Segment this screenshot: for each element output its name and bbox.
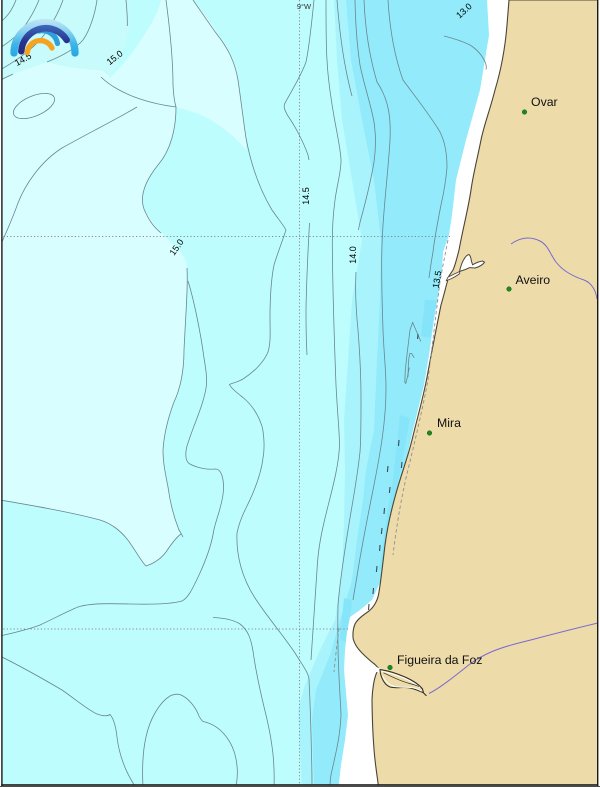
- svg-text:14.5: 14.5: [301, 187, 311, 205]
- svg-text:Aveiro: Aveiro: [516, 273, 551, 287]
- svg-text:9°W: 9°W: [297, 2, 312, 11]
- svg-text:14.0: 14.0: [348, 246, 358, 264]
- svg-text:Figueira da Foz: Figueira da Foz: [397, 653, 482, 667]
- svg-text:Mira: Mira: [437, 416, 461, 430]
- svg-text:Ovar: Ovar: [531, 95, 558, 109]
